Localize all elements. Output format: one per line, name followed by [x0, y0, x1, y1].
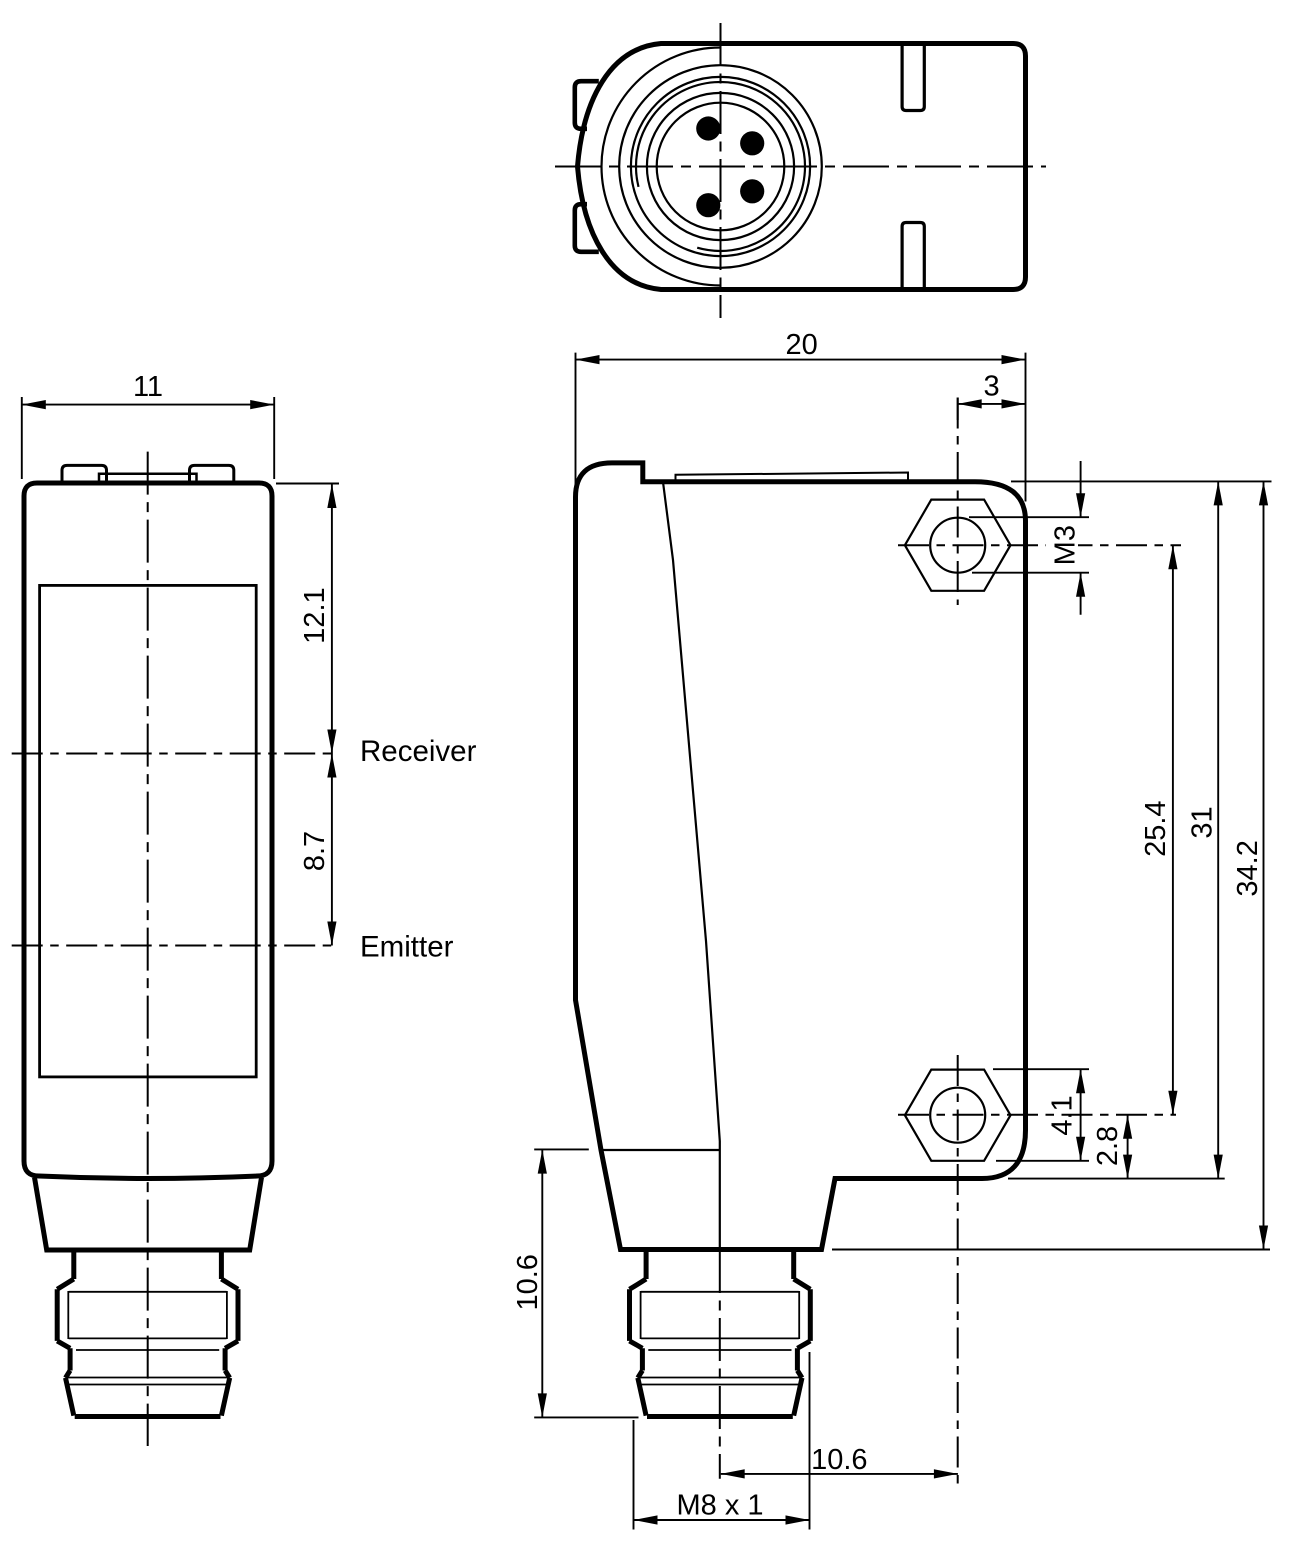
svg-text:10.6: 10.6	[512, 1254, 544, 1310]
svg-text:Receiver: Receiver	[360, 735, 477, 768]
svg-text:31: 31	[1186, 806, 1218, 838]
svg-text:34.2: 34.2	[1232, 840, 1264, 896]
svg-text:11: 11	[133, 371, 163, 403]
svg-text:3: 3	[984, 371, 1000, 403]
svg-text:M3: M3	[1049, 525, 1081, 565]
svg-text:10.6: 10.6	[811, 1444, 867, 1476]
svg-text:20: 20	[785, 329, 817, 361]
svg-text:8.7: 8.7	[299, 831, 331, 871]
svg-text:Emitter: Emitter	[360, 931, 454, 964]
svg-text:4.1: 4.1	[1047, 1095, 1079, 1135]
svg-text:12.1: 12.1	[299, 587, 331, 643]
svg-text:M8 x 1: M8 x 1	[676, 1489, 763, 1521]
svg-text:2.8: 2.8	[1092, 1126, 1124, 1166]
svg-text:25.4: 25.4	[1140, 800, 1172, 856]
